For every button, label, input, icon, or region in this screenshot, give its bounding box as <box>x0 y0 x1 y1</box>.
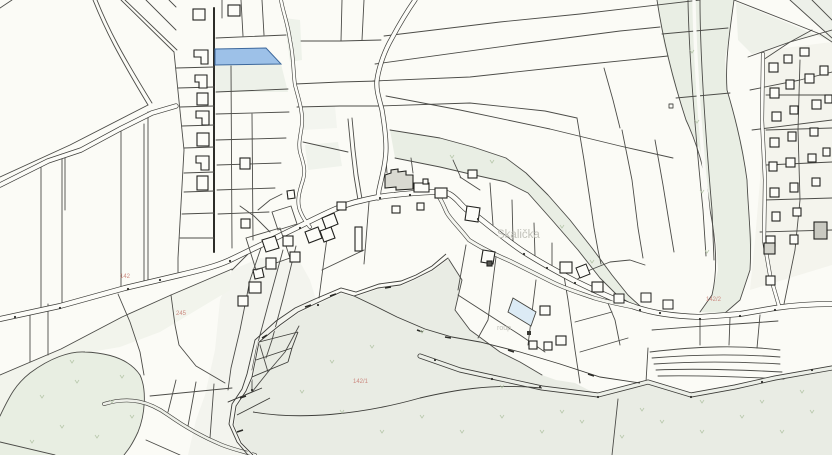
svg-text:Skalička: Skalička <box>497 229 540 241</box>
svg-text:142/1: 142/1 <box>353 379 369 385</box>
svg-text:142: 142 <box>120 274 131 280</box>
svg-text:245: 245 <box>176 311 187 317</box>
svg-text:roup: roup <box>497 325 511 332</box>
svg-text:142/2: 142/2 <box>706 297 722 303</box>
